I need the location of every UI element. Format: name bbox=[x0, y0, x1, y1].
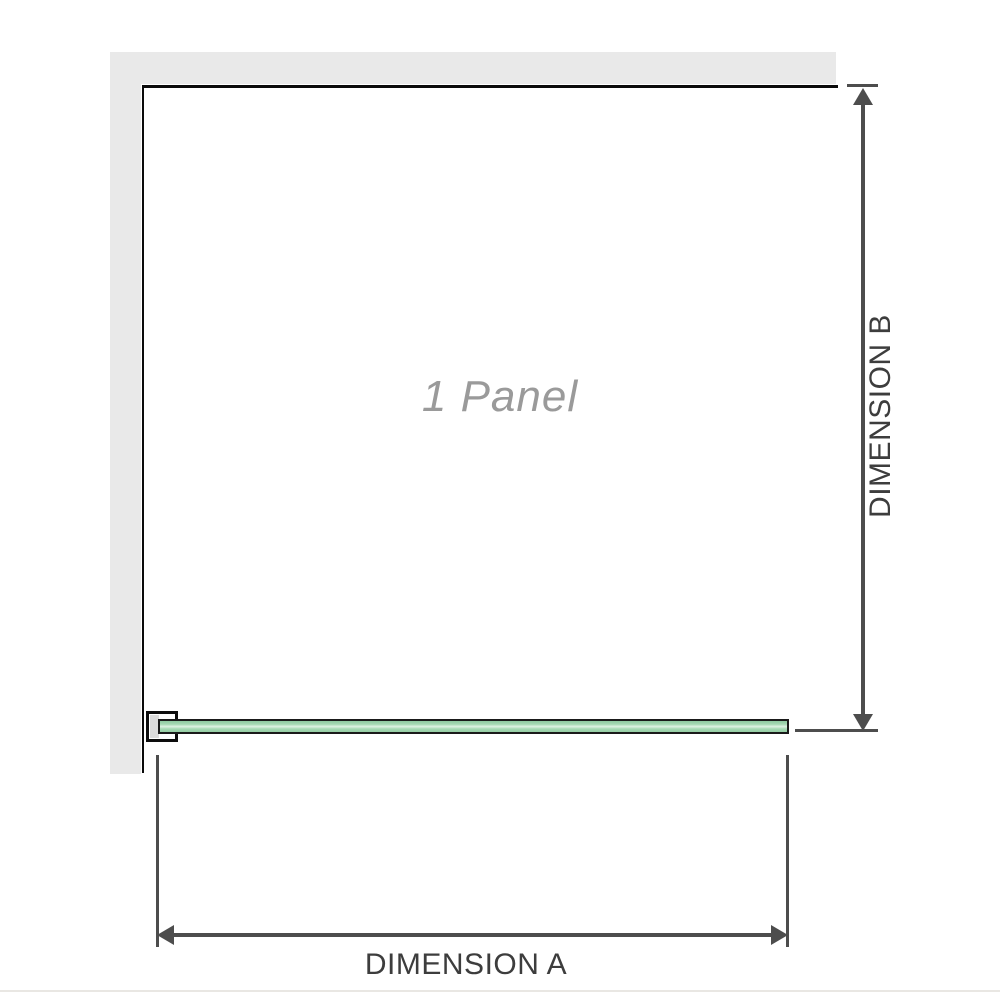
dimension-b-arrow-down-icon bbox=[853, 714, 873, 731]
dimension-b-tick-top bbox=[847, 84, 878, 87]
glass-panel bbox=[158, 719, 789, 734]
dimension-a-line bbox=[170, 933, 775, 937]
dimension-a-arrow-right-icon bbox=[771, 925, 788, 945]
dimension-a-extension-left bbox=[156, 755, 159, 947]
bottom-divider-line bbox=[0, 990, 1000, 992]
wall-top-strip bbox=[110, 52, 836, 84]
dimension-b-label: DIMENSION B bbox=[863, 266, 899, 566]
dimension-diagram: DIMENSION B DIMENSION A 1 Panel bbox=[0, 0, 1000, 1000]
enclosure-outline-left bbox=[142, 85, 144, 773]
dimension-a-arrow-left-icon bbox=[157, 925, 174, 945]
enclosure-outline-top bbox=[142, 85, 838, 88]
wall-left-strip bbox=[110, 52, 141, 774]
dimension-a-label: DIMENSION A bbox=[316, 948, 616, 982]
dimension-b-arrow-up-icon bbox=[853, 88, 873, 105]
dimension-a-extension-right bbox=[786, 755, 789, 947]
panel-count-label: 1 Panel bbox=[300, 372, 700, 422]
